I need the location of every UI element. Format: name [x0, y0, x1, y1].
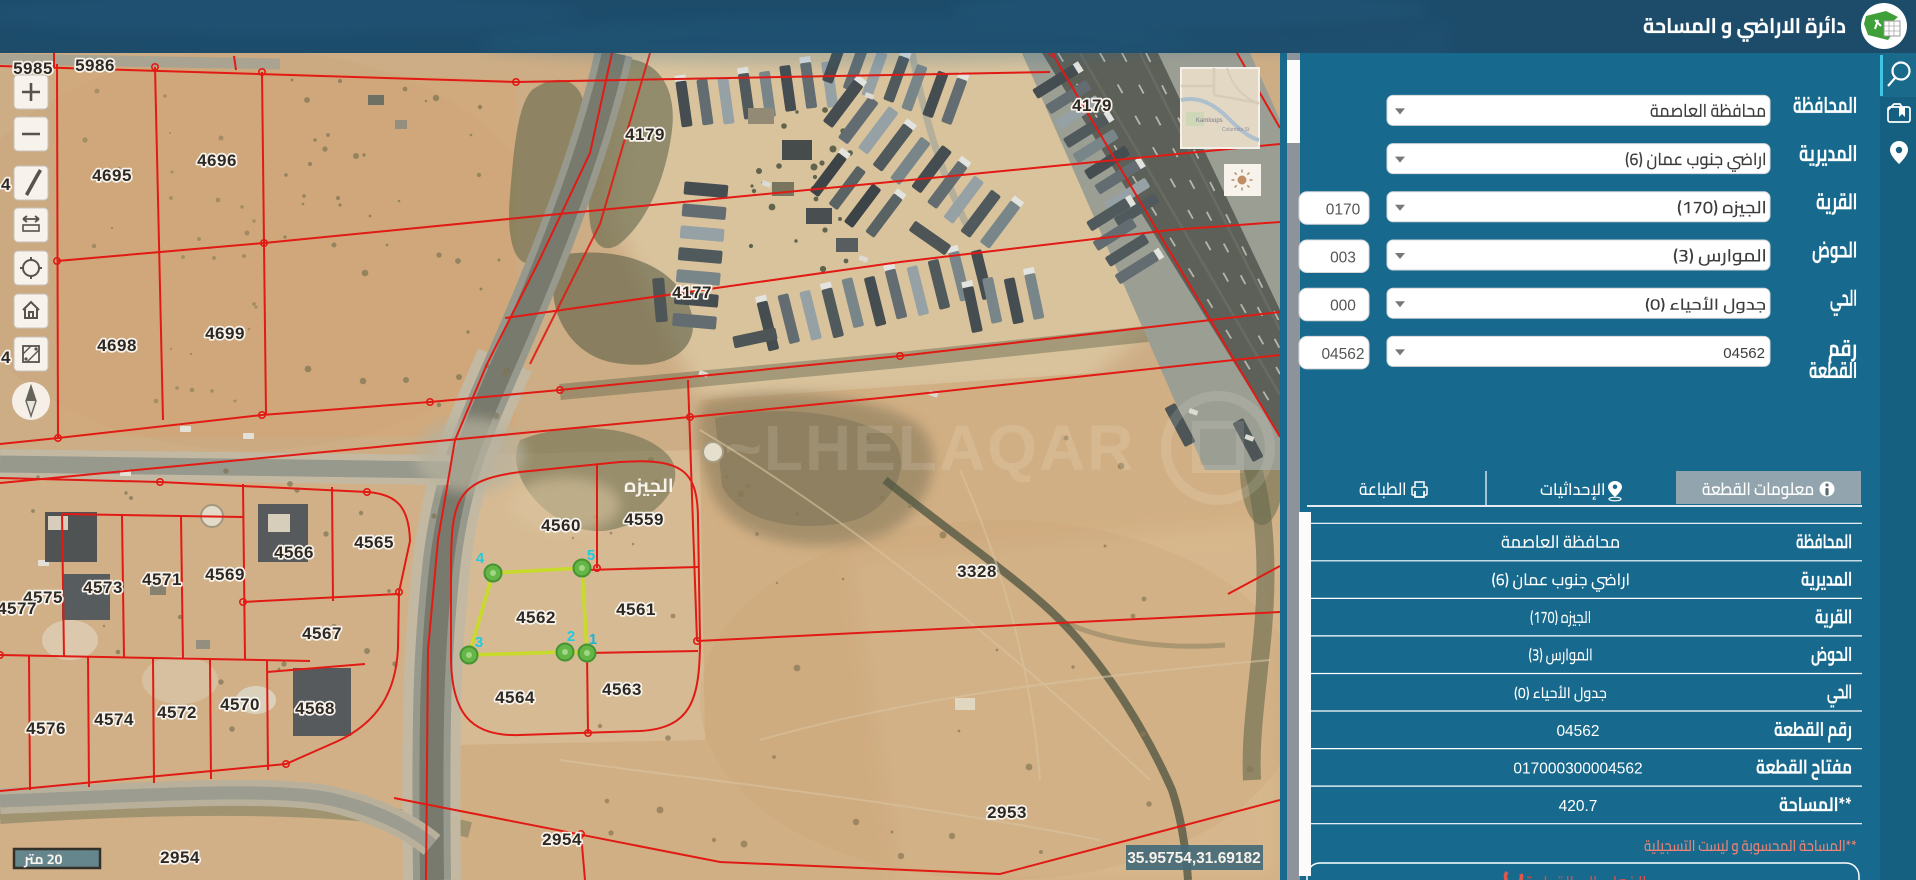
svg-text:04562: 04562 [1556, 723, 1599, 740]
svg-text:000: 000 [1330, 298, 1356, 315]
svg-text:0170: 0170 [1326, 201, 1361, 218]
svg-text:420.7: 420.7 [1559, 798, 1598, 815]
svg-text:017000300004562: 017000300004562 [1513, 761, 1642, 778]
svg-text:003: 003 [1330, 250, 1356, 267]
svg-text:04562: 04562 [1321, 346, 1364, 363]
svg-text:04562: 04562 [1723, 345, 1765, 362]
